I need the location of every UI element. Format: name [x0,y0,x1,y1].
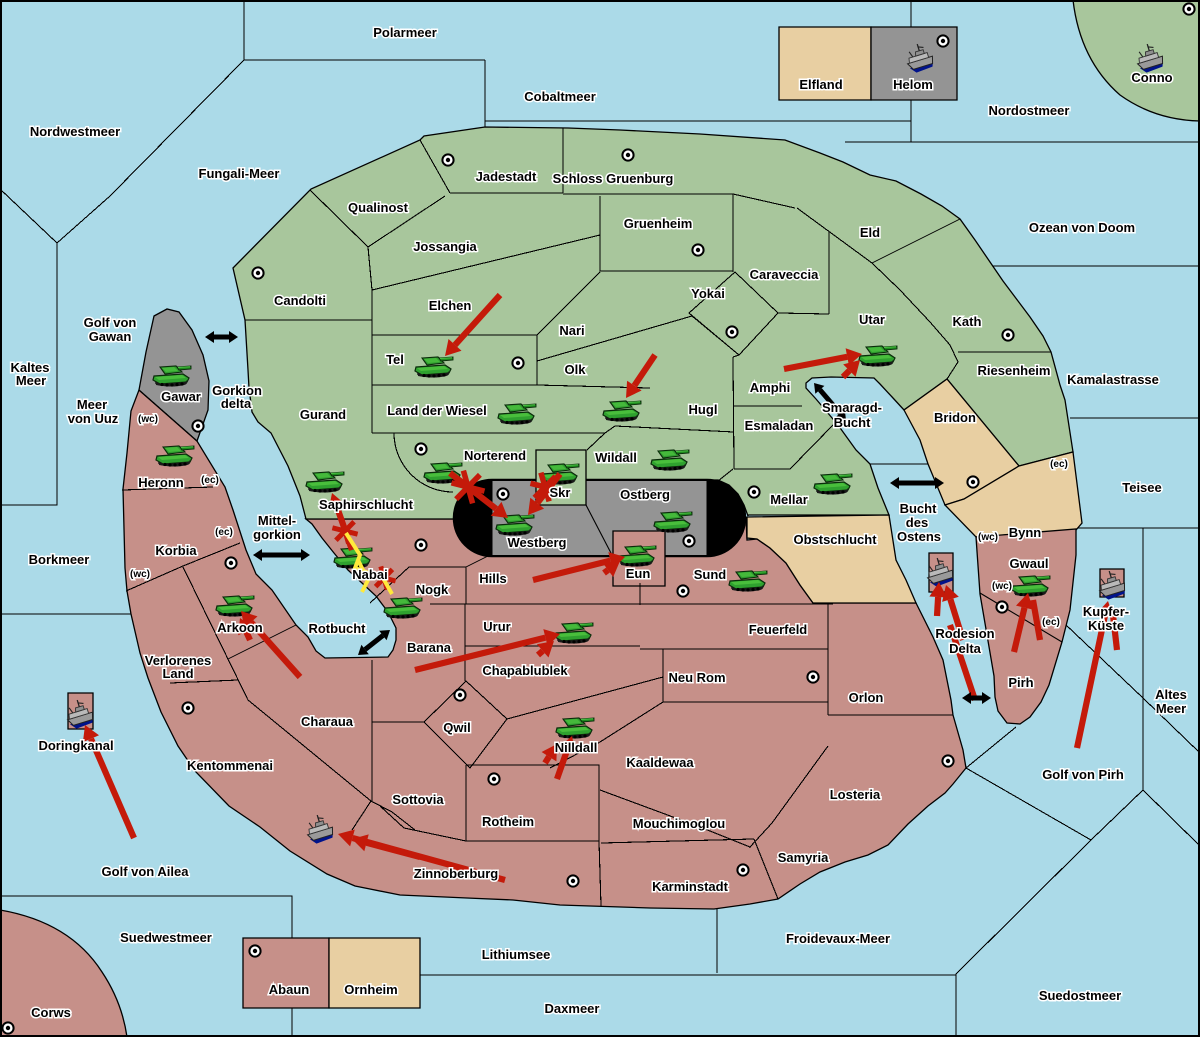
svg-text:Conno: Conno [1131,70,1172,85]
svg-text:Eun: Eun [626,566,651,581]
svg-text:Bynn: Bynn [1009,525,1042,540]
svg-text:Obstschlucht: Obstschlucht [793,532,877,547]
svg-text:Polarmeer: Polarmeer [373,25,437,40]
svg-text:Eld: Eld [860,225,880,240]
svg-text:delta: delta [221,396,252,411]
svg-text:Westberg: Westberg [508,535,567,550]
svg-text:Yokai: Yokai [691,286,725,301]
svg-text:Meer: Meer [16,373,46,388]
svg-text:Ostens: Ostens [897,529,941,544]
svg-text:Kath: Kath [953,314,982,329]
svg-text:(wc): (wc) [978,532,998,543]
svg-text:Kaaldewaa: Kaaldewaa [626,755,694,770]
svg-text:Bridon: Bridon [934,410,976,425]
svg-text:(ec): (ec) [1050,459,1068,470]
svg-text:Borkmeer: Borkmeer [29,552,90,567]
svg-text:Tel: Tel [386,352,404,367]
svg-text:Arkoon: Arkoon [217,620,263,635]
svg-text:Sund: Sund [694,567,727,582]
svg-text:Mittel-: Mittel- [258,513,296,528]
svg-text:Daxmeer: Daxmeer [545,1001,600,1016]
svg-text:Qualinost: Qualinost [348,200,409,215]
svg-text:Lithiumsee: Lithiumsee [482,947,551,962]
svg-text:Zinnoberburg: Zinnoberburg [414,866,499,881]
svg-text:Gawan: Gawan [89,329,132,344]
svg-text:Heronn: Heronn [138,475,184,490]
svg-text:Land der Wiesel: Land der Wiesel [387,403,487,418]
svg-text:Mellar: Mellar [770,492,808,507]
svg-text:Golf von: Golf von [84,315,137,330]
svg-text:(wc): (wc) [130,569,150,580]
svg-text:Kupfer-: Kupfer- [1083,604,1129,619]
svg-text:Bucht: Bucht [900,501,938,516]
svg-text:Orlon: Orlon [849,690,884,705]
svg-text:Pirh: Pirh [1008,675,1033,690]
svg-text:Karminstadt: Karminstadt [652,879,729,894]
svg-text:Losteria: Losteria [830,787,881,802]
svg-text:Hugl: Hugl [689,402,718,417]
svg-text:Barana: Barana [407,640,452,655]
svg-text:Ornheim: Ornheim [344,982,397,997]
svg-text:Doringkanal: Doringkanal [38,738,113,753]
svg-text:Golf von Ailea: Golf von Ailea [102,864,190,879]
svg-text:Elfland: Elfland [799,77,842,92]
svg-text:Kentommenai: Kentommenai [187,758,273,773]
svg-text:von Uuz: von Uuz [68,411,119,426]
svg-text:Riesenheim: Riesenheim [978,363,1051,378]
svg-text:Gurand: Gurand [300,407,346,422]
svg-text:Hills: Hills [479,571,506,586]
svg-text:Sottovia: Sottovia [392,792,444,807]
svg-text:Helom: Helom [893,77,933,92]
svg-text:(wc): (wc) [992,581,1012,592]
svg-text:Rodesion: Rodesion [935,626,994,641]
svg-text:Bucht: Bucht [834,415,872,430]
svg-text:Suedwestmeer: Suedwestmeer [120,930,212,945]
svg-text:Saphirschlucht: Saphirschlucht [319,497,414,512]
svg-text:Meer: Meer [1156,701,1186,716]
svg-text:Chapablublek: Chapablublek [482,663,568,678]
svg-text:Küste: Küste [1088,618,1124,633]
svg-text:Rotheim: Rotheim [482,814,534,829]
svg-text:Abaun: Abaun [269,982,310,997]
svg-text:Suedostmeer: Suedostmeer [1039,988,1121,1003]
svg-text:Olk: Olk [565,362,587,377]
svg-text:(ec): (ec) [201,475,219,486]
svg-text:Wildall: Wildall [595,450,637,465]
svg-text:Candolti: Candolti [274,293,326,308]
svg-text:Nordostmeer: Nordostmeer [989,103,1070,118]
svg-text:gorkion: gorkion [253,527,301,542]
svg-text:Gawar: Gawar [161,389,201,404]
svg-text:Gruenheim: Gruenheim [624,216,693,231]
svg-text:Nabai: Nabai [352,567,387,582]
svg-text:Schloss Gruenburg: Schloss Gruenburg [553,171,674,186]
svg-text:Nogk: Nogk [416,582,449,597]
svg-text:Kamalastrasse: Kamalastrasse [1067,372,1159,387]
svg-text:Nilldall: Nilldall [555,740,598,755]
svg-text:Samyria: Samyria [778,850,829,865]
svg-text:Fungali-Meer: Fungali-Meer [199,166,280,181]
svg-text:Nordwestmeer: Nordwestmeer [30,124,120,139]
svg-text:(wc): (wc) [138,414,158,425]
svg-text:Corws: Corws [31,1005,71,1020]
svg-text:Utar: Utar [859,312,885,327]
svg-text:Smaragd-: Smaragd- [822,400,882,415]
svg-text:Mouchimoglou: Mouchimoglou [633,816,725,831]
svg-text:Land: Land [162,666,193,681]
svg-text:Froidevaux-Meer: Froidevaux-Meer [786,931,890,946]
svg-text:Altes: Altes [1155,687,1187,702]
svg-text:Esmaladan: Esmaladan [745,418,814,433]
svg-text:Urur: Urur [483,619,510,634]
svg-text:Cobaltmeer: Cobaltmeer [524,89,596,104]
svg-text:Ostberg: Ostberg [620,487,670,502]
svg-text:Teisee: Teisee [1122,480,1162,495]
svg-text:Neu Rom: Neu Rom [668,670,725,685]
svg-text:Nari: Nari [559,323,584,338]
svg-text:des: des [906,515,928,530]
svg-text:Meer: Meer [77,397,107,412]
svg-text:Jadestadt: Jadestadt [476,169,537,184]
svg-text:Jossangia: Jossangia [413,239,477,254]
svg-text:(ec): (ec) [215,527,233,538]
svg-text:Golf von Pirh: Golf von Pirh [1042,767,1124,782]
svg-text:Norterend: Norterend [464,448,526,463]
svg-text:Caraveccia: Caraveccia [750,267,819,282]
svg-text:Feuerfeld: Feuerfeld [749,622,808,637]
svg-text:(ec): (ec) [1042,617,1060,628]
svg-text:Amphi: Amphi [750,380,790,395]
svg-text:Delta: Delta [949,641,982,656]
svg-text:Skr: Skr [550,485,571,500]
svg-text:Elchen: Elchen [429,298,472,313]
svg-text:Qwil: Qwil [443,720,470,735]
svg-text:Rotbucht: Rotbucht [308,621,366,636]
svg-text:Gwaul: Gwaul [1009,556,1048,571]
svg-text:Korbia: Korbia [155,543,197,558]
svg-text:Charaua: Charaua [301,714,354,729]
svg-text:Ozean von Doom: Ozean von Doom [1029,220,1135,235]
